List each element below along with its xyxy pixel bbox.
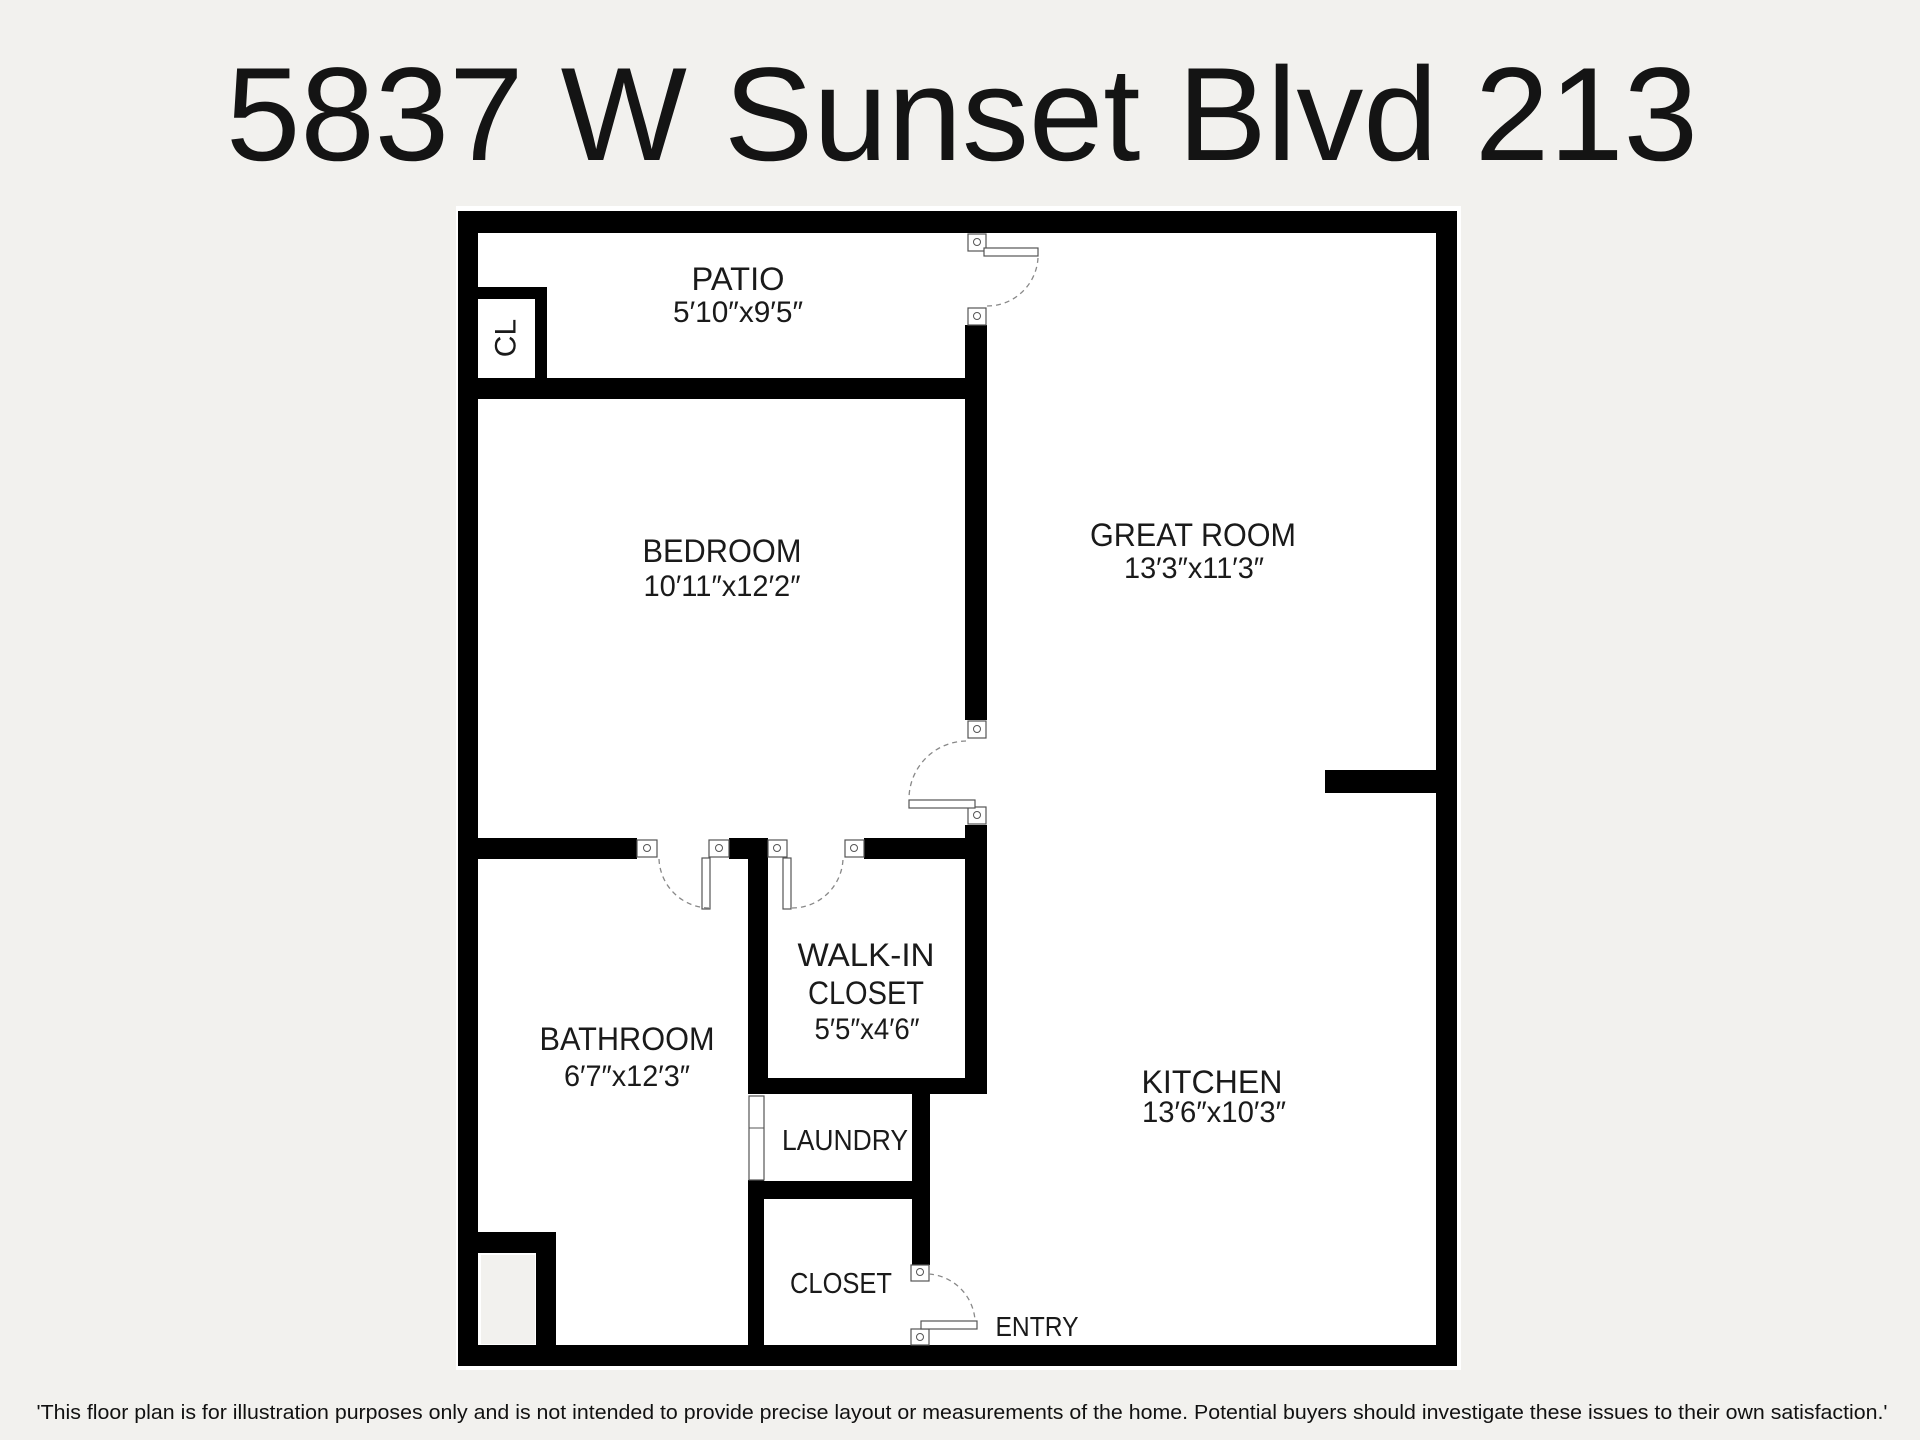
svg-text:WALK-IN: WALK-IN <box>798 937 935 973</box>
svg-text:PATIO: PATIO <box>692 261 785 297</box>
svg-text:GREAT ROOM: GREAT ROOM <box>1090 517 1296 553</box>
svg-text:6′7″x12′3″: 6′7″x12′3″ <box>564 1060 690 1093</box>
svg-text:CLOSET: CLOSET <box>790 1268 892 1300</box>
svg-text:5′5″x4′6″: 5′5″x4′6″ <box>815 1013 920 1046</box>
svg-text:BEDROOM: BEDROOM <box>643 533 802 569</box>
svg-text:KITCHEN: KITCHEN <box>1142 1064 1283 1100</box>
svg-text:13′3″x11′3″: 13′3″x11′3″ <box>1124 552 1264 585</box>
svg-text:CL: CL <box>490 319 523 357</box>
svg-text:13′6″x10′3″: 13′6″x10′3″ <box>1142 1096 1286 1129</box>
svg-text:5′10″x9′5″: 5′10″x9′5″ <box>673 296 803 329</box>
svg-text:'This floor plan is for illust: 'This floor plan is for illustration pur… <box>37 1402 1888 1424</box>
svg-text:CLOSET: CLOSET <box>808 975 924 1011</box>
svg-text:BATHROOM: BATHROOM <box>540 1021 715 1057</box>
svg-text:LAUNDRY: LAUNDRY <box>782 1125 908 1157</box>
svg-text:ENTRY: ENTRY <box>996 1311 1079 1342</box>
svg-text:5837 W Sunset Blvd 213: 5837 W Sunset Blvd 213 <box>226 41 1698 189</box>
svg-text:10′11″x12′2″: 10′11″x12′2″ <box>644 570 801 603</box>
